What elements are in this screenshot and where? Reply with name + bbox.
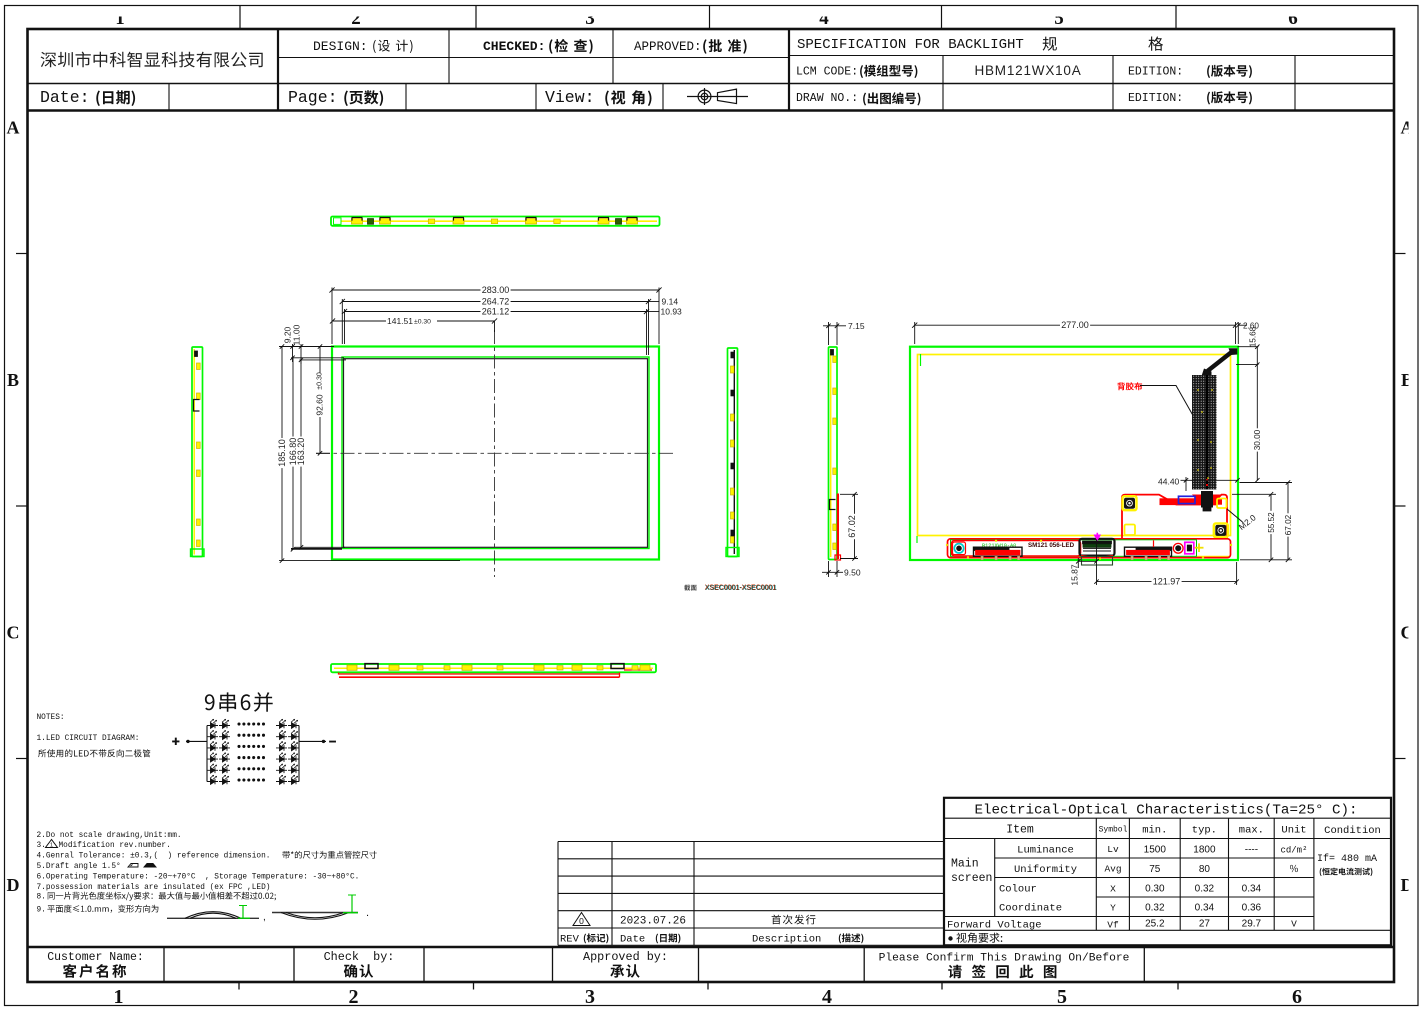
svg-text:Check by:: Check by: bbox=[324, 950, 395, 964]
svg-text:Unit: Unit bbox=[1281, 825, 1306, 837]
svg-text:30.00: 30.00 bbox=[1253, 429, 1262, 450]
svg-text:Vf: Vf bbox=[1107, 919, 1119, 930]
svg-text:2023.07.26: 2023.07.26 bbox=[620, 916, 686, 928]
svg-text:EDITION:: EDITION: bbox=[1128, 66, 1183, 79]
svg-text:screen: screen bbox=[951, 872, 992, 885]
svg-text:Lv: Lv bbox=[1107, 844, 1119, 855]
svg-text:0.34: 0.34 bbox=[1195, 903, 1215, 914]
svg-text:264.72: 264.72 bbox=[482, 296, 510, 306]
svg-text:D: D bbox=[7, 875, 20, 895]
svg-text:9.14: 9.14 bbox=[662, 296, 679, 306]
svg-text:5: 5 bbox=[1057, 986, 1067, 1008]
svg-text:Symbol: Symbol bbox=[1099, 826, 1128, 835]
svg-text:Condition: Condition bbox=[1324, 825, 1381, 837]
svg-text:25.2: 25.2 bbox=[1145, 919, 1165, 930]
svg-text:Colour: Colour bbox=[999, 884, 1037, 896]
svg-text:Main: Main bbox=[951, 858, 979, 871]
svg-text:NOTES:: NOTES: bbox=[37, 714, 65, 722]
svg-text:277.00: 277.00 bbox=[1061, 320, 1089, 330]
svg-text:163.20: 163.20 bbox=[296, 438, 306, 466]
svg-text:.: . bbox=[366, 907, 369, 919]
svg-text:6: 6 bbox=[1292, 986, 1302, 1008]
svg-text:27: 27 bbox=[1199, 919, 1211, 930]
svg-text:DESIGN:: DESIGN: bbox=[313, 39, 368, 54]
svg-text:B: B bbox=[7, 370, 19, 390]
svg-text:67.02: 67.02 bbox=[1284, 514, 1293, 535]
svg-text:4.Genral Tolerance: ±0.3,( ): 4.Genral Tolerance: ±0.3,( ) reference d… bbox=[37, 853, 271, 861]
svg-text:Please Confirm This Drawing On: Please Confirm This Drawing On/Before bbox=[879, 953, 1130, 965]
svg-text:LCM CODE:: LCM CODE: bbox=[796, 66, 858, 79]
svg-text:5.Draft angle 1.5°: 5.Draft angle 1.5° bbox=[37, 862, 121, 871]
svg-text:0.34: 0.34 bbox=[1242, 884, 1262, 895]
svg-text:1500: 1500 bbox=[1144, 845, 1167, 856]
svg-text:APPROVED:: APPROVED: bbox=[634, 40, 702, 54]
svg-text:121.97: 121.97 bbox=[1153, 577, 1181, 587]
svg-text:9.50: 9.50 bbox=[844, 568, 861, 578]
svg-text:Uniformity: Uniformity bbox=[1014, 864, 1077, 876]
svg-text:0.36: 0.36 bbox=[1242, 903, 1262, 914]
svg-text:0.32: 0.32 bbox=[1195, 884, 1215, 895]
svg-text:Electrical-Optical Characteris: Electrical-Optical Characteristics(Ta=25… bbox=[974, 803, 1357, 819]
svg-text:Forward Voltage: Forward Voltage bbox=[947, 919, 1042, 931]
svg-text:141.51: 141.51 bbox=[387, 316, 413, 326]
svg-text:4: 4 bbox=[822, 986, 832, 1008]
svg-text:If= 480 mA: If= 480 mA bbox=[1317, 853, 1377, 865]
svg-text:44.40: 44.40 bbox=[1158, 476, 1180, 486]
svg-text:C: C bbox=[7, 623, 20, 643]
svg-text:Luminance: Luminance bbox=[1017, 845, 1074, 857]
svg-text:XSEC0001-XSEC0001: XSEC0001-XSEC0001 bbox=[705, 585, 777, 592]
svg-text:3: 3 bbox=[585, 986, 595, 1008]
svg-text:----: ---- bbox=[1245, 845, 1258, 856]
svg-text:11.00: 11.00 bbox=[292, 324, 302, 345]
svg-text:Y: Y bbox=[1110, 903, 1116, 914]
svg-text:Approved by:: Approved by: bbox=[583, 950, 668, 964]
svg-text:8.: 8. bbox=[37, 894, 46, 902]
svg-text:EDITION:: EDITION: bbox=[1128, 92, 1183, 105]
svg-text:15.87: 15.87 bbox=[1070, 564, 1080, 586]
svg-text:0.32: 0.32 bbox=[1145, 903, 1165, 914]
svg-text:9.: 9. bbox=[37, 907, 46, 915]
svg-text:SPECIFICATION FOR BACKLIGHT: SPECIFICATION FOR BACKLIGHT bbox=[797, 37, 1024, 53]
svg-text:Customer Name:: Customer Name: bbox=[47, 951, 144, 964]
svg-text:92.60: 92.60 bbox=[314, 394, 324, 416]
svg-text:CHECKED:: CHECKED: bbox=[483, 39, 545, 54]
svg-text:,: , bbox=[263, 912, 266, 923]
svg-text:2.Do not scale drawing,Unit:mm: 2.Do not scale drawing,Unit:mm. bbox=[37, 832, 182, 840]
svg-text:Item: Item bbox=[1006, 824, 1034, 837]
svg-text:V: V bbox=[1291, 919, 1297, 930]
svg-text:2: 2 bbox=[349, 986, 359, 1008]
svg-text:1.LED CIRCUIT DIAGRAM:: 1.LED CIRCUIT DIAGRAM: bbox=[37, 735, 140, 743]
svg-text:185.10: 185.10 bbox=[277, 439, 287, 467]
svg-text:3.: 3. bbox=[37, 842, 46, 850]
svg-text:±0.30: ±0.30 bbox=[317, 372, 324, 390]
svg-text:80: 80 bbox=[1199, 864, 1211, 875]
svg-text:±0.30: ±0.30 bbox=[414, 318, 431, 325]
svg-text:67.02: 67.02 bbox=[847, 515, 857, 538]
svg-text:7.possession materials are ins: 7.possession materials are insulated (ex… bbox=[37, 884, 271, 892]
svg-text:15.68: 15.68 bbox=[1249, 326, 1258, 347]
svg-text:cd/m²: cd/m² bbox=[1280, 846, 1307, 856]
svg-text:1800: 1800 bbox=[1193, 845, 1216, 856]
svg-text:HBM121WX10A: HBM121WX10A bbox=[974, 63, 1081, 78]
svg-text:6.Operating Temperature: -20~+: 6.Operating Temperature: -20~+70°C , Sto… bbox=[37, 872, 360, 881]
svg-text:Coordinate: Coordinate bbox=[999, 903, 1062, 915]
svg-text:max.: max. bbox=[1239, 825, 1264, 837]
svg-text:1: 1 bbox=[50, 843, 53, 849]
svg-text:261.12: 261.12 bbox=[482, 306, 510, 316]
svg-text:View:: View: bbox=[545, 88, 595, 107]
svg-text:283.00: 283.00 bbox=[482, 285, 510, 295]
svg-text:0: 0 bbox=[579, 916, 584, 926]
svg-text:29.7: 29.7 bbox=[1242, 919, 1262, 930]
svg-text:10.93: 10.93 bbox=[661, 306, 683, 316]
svg-text:Modification rev.number.: Modification rev.number. bbox=[59, 842, 171, 850]
svg-text:55.52: 55.52 bbox=[1267, 512, 1276, 533]
svg-text:7.15: 7.15 bbox=[848, 321, 865, 331]
svg-text:0.30: 0.30 bbox=[1145, 884, 1165, 895]
svg-text:1: 1 bbox=[114, 986, 124, 1008]
svg-text:+: + bbox=[172, 734, 180, 749]
svg-text:Description: Description bbox=[752, 934, 821, 946]
svg-text:Date:: Date: bbox=[40, 88, 90, 107]
svg-text:Date: Date bbox=[620, 934, 645, 946]
svg-text:75: 75 bbox=[1149, 864, 1161, 875]
svg-text:min.: min. bbox=[1142, 825, 1167, 837]
svg-text:Page:: Page: bbox=[288, 88, 338, 107]
svg-text:REV: REV bbox=[560, 934, 580, 946]
svg-text:A: A bbox=[7, 118, 20, 138]
svg-text:−: − bbox=[329, 735, 336, 749]
svg-text:DRAW NO.:: DRAW NO.: bbox=[796, 92, 858, 105]
svg-text:X: X bbox=[1110, 884, 1116, 895]
svg-text:SM121 056-LED: SM121 056-LED bbox=[1028, 542, 1075, 549]
svg-text:Avg: Avg bbox=[1104, 864, 1121, 875]
svg-text:typ.: typ. bbox=[1192, 825, 1217, 837]
